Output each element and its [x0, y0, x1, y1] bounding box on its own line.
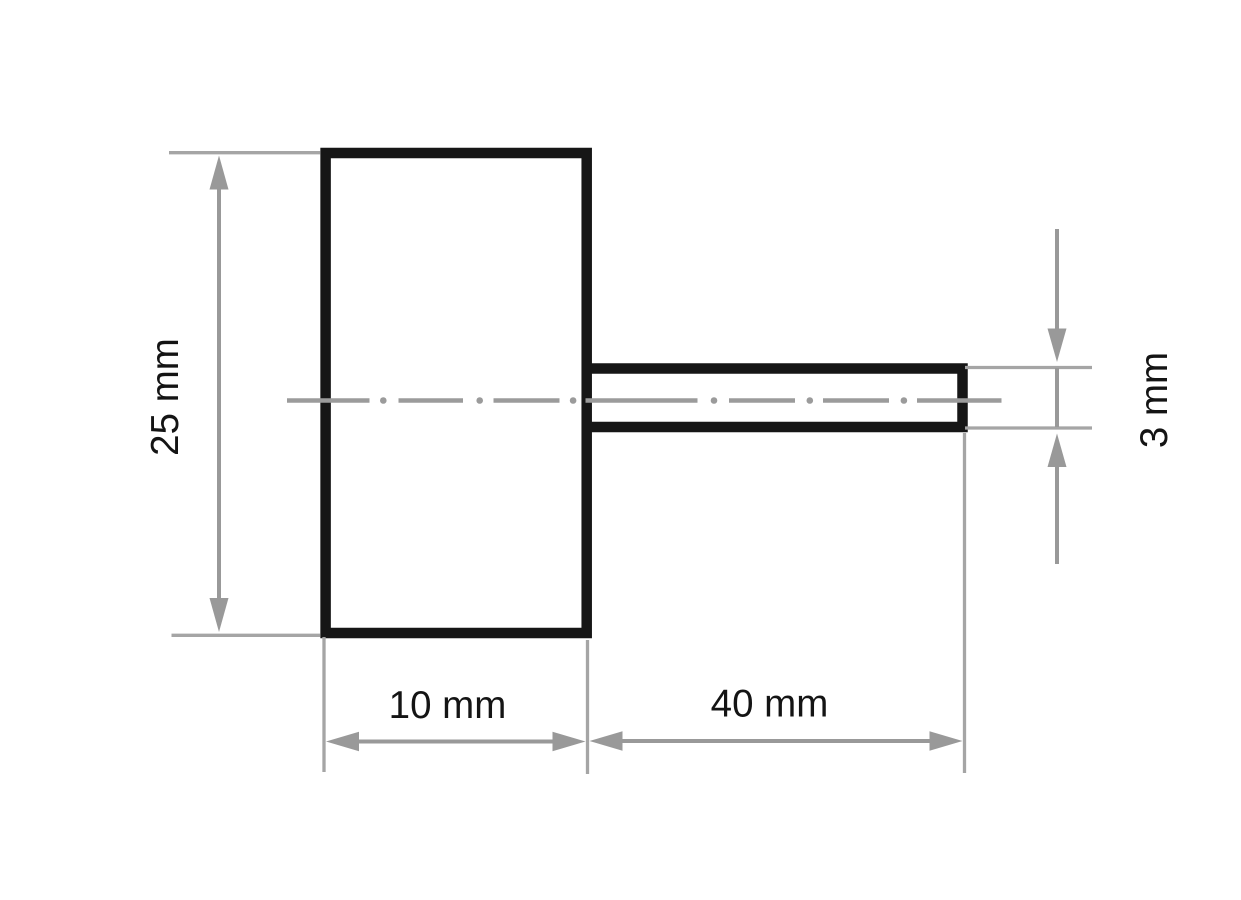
svg-text:3 mm: 3 mm: [1133, 352, 1176, 448]
svg-text:10 mm: 10 mm: [389, 684, 507, 727]
svg-text:40 mm: 40 mm: [711, 683, 829, 726]
svg-text:25 mm: 25 mm: [144, 338, 187, 456]
